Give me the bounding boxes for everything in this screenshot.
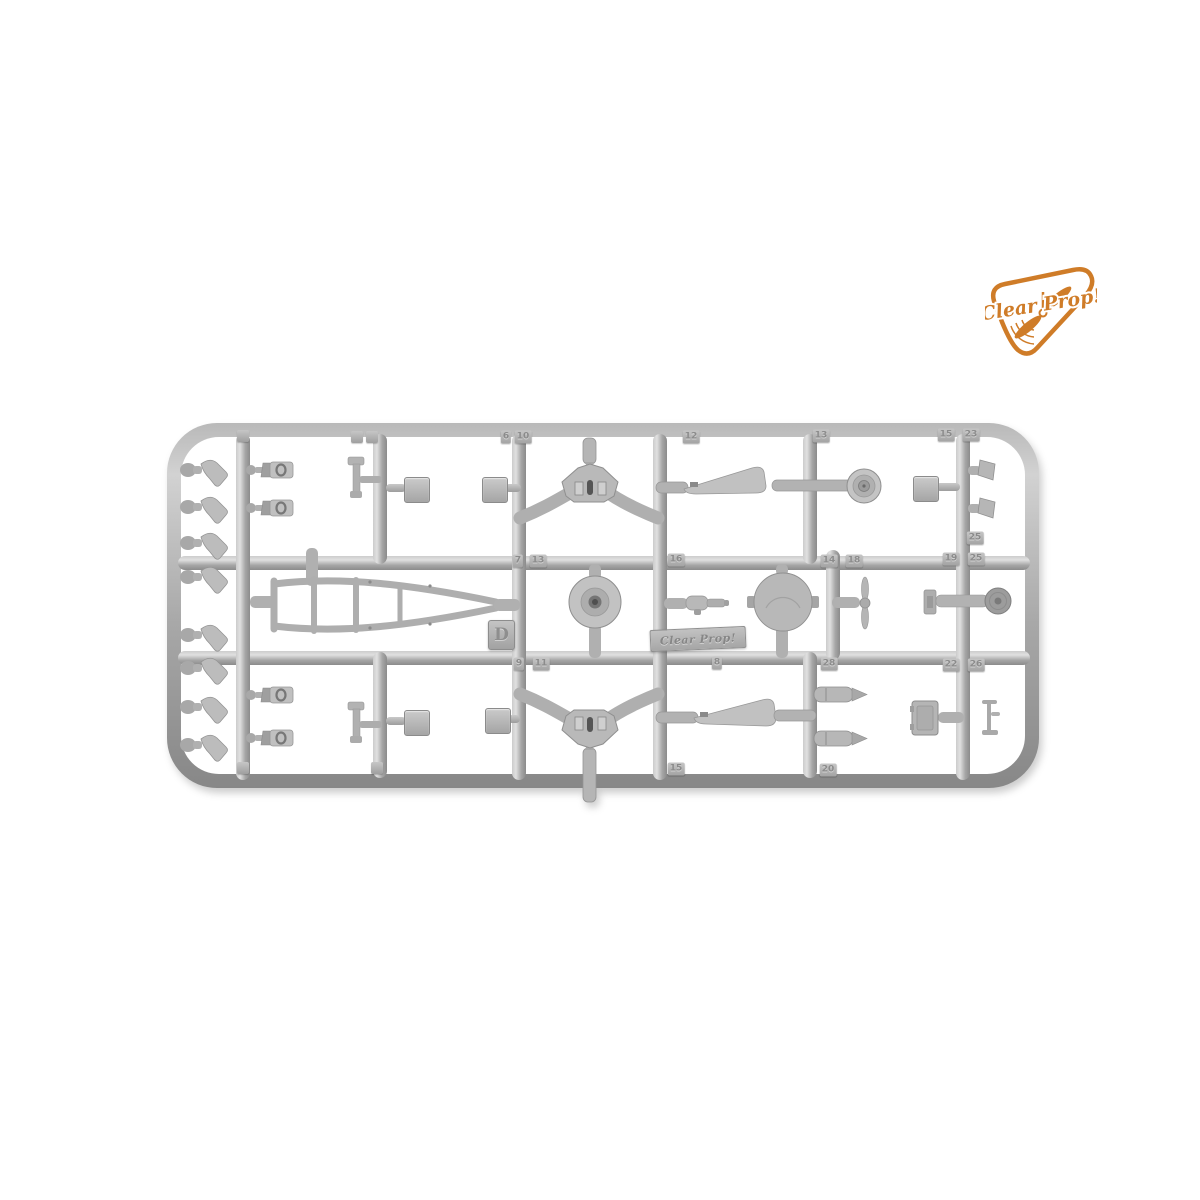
part-bomb — [812, 728, 870, 750]
part-number-tag: 20 — [820, 764, 837, 777]
blank-tab — [237, 762, 249, 774]
part-square-box — [404, 477, 430, 503]
part-number-tag: 8 — [712, 657, 722, 670]
part-number-tag: 15 — [938, 429, 955, 442]
part-number-tag: 15 — [668, 763, 685, 776]
part-cover-disc — [744, 564, 824, 658]
part-number-tag: 22 — [943, 659, 960, 672]
part-bomb — [812, 684, 870, 706]
part-number-tag: 26 — [968, 659, 985, 672]
part-hook — [180, 455, 232, 485]
part-lever-with-hole — [246, 496, 298, 520]
part-lever-with-hole — [246, 458, 298, 482]
part-antenna-mast — [976, 698, 1006, 740]
part-number-tag: 13 — [813, 430, 830, 443]
sprue-gate — [386, 484, 406, 492]
photo-canvas: Clear Prop! — [0, 0, 1200, 1200]
part-hook — [180, 692, 232, 722]
part-number-tag: 11 — [533, 658, 550, 671]
part-number-tag: 7 — [513, 555, 523, 568]
part-hook — [180, 492, 232, 522]
part-fin-blade — [656, 696, 816, 736]
part-number-tag: 12 — [683, 431, 700, 444]
part-control-stick — [344, 700, 384, 750]
part-lever-with-hole — [246, 683, 298, 707]
blank-tab — [371, 762, 383, 774]
part-instrument-panel — [510, 662, 668, 774]
part-hook — [180, 528, 232, 558]
part-hook — [180, 562, 232, 592]
part-clip — [968, 456, 1002, 528]
part-small-propeller — [828, 578, 890, 628]
part-square-box — [913, 476, 939, 502]
sprue-gate — [386, 717, 406, 725]
part-number-tag: 19 — [943, 553, 960, 566]
brand-plate: Clear Prop! — [650, 626, 747, 652]
part-number-tag: 10 — [515, 431, 532, 444]
part-hook — [180, 653, 232, 683]
part-number-tag: 28 — [821, 658, 838, 671]
part-number-tag: 25 — [967, 532, 984, 545]
blank-tab — [351, 431, 363, 443]
part-control-stick — [344, 455, 384, 505]
part-instrument-panel — [510, 438, 668, 522]
part-gun-barrel — [664, 592, 730, 618]
part-hook — [180, 730, 232, 760]
part-hook — [180, 620, 232, 650]
part-number-tag: 23 — [963, 429, 980, 442]
part-number-tag: 18 — [846, 555, 863, 568]
sprue-letter-tag: D — [488, 620, 515, 650]
part-fuselage-frame — [250, 548, 520, 648]
blank-tab — [237, 430, 249, 442]
sprue-letter: D — [494, 625, 509, 645]
part-square-box — [485, 708, 511, 734]
part-hatch-door — [908, 698, 964, 738]
part-number-tag: 9 — [514, 658, 524, 671]
part-round-gauge — [772, 462, 884, 510]
part-fin-blade — [656, 462, 776, 502]
part-square-box — [482, 477, 508, 503]
part-tail-wheel — [918, 584, 1014, 622]
part-number-tag: 14 — [821, 555, 838, 568]
blank-tab — [366, 431, 378, 443]
brand-plate-text: Clear Prop! — [660, 631, 737, 647]
part-number-tag: 25 — [968, 553, 985, 566]
part-number-tag: 13 — [530, 555, 547, 568]
sprue-runner-d: Clear Prop! D 61012131523257131614181925… — [0, 0, 1200, 1200]
part-number-tag: 6 — [501, 431, 511, 444]
part-square-box — [404, 710, 430, 736]
part-number-tag: 16 — [668, 554, 685, 567]
part-wheel-hub — [560, 564, 630, 658]
part-lever-with-hole — [246, 726, 298, 750]
sprue-gate — [936, 483, 960, 491]
